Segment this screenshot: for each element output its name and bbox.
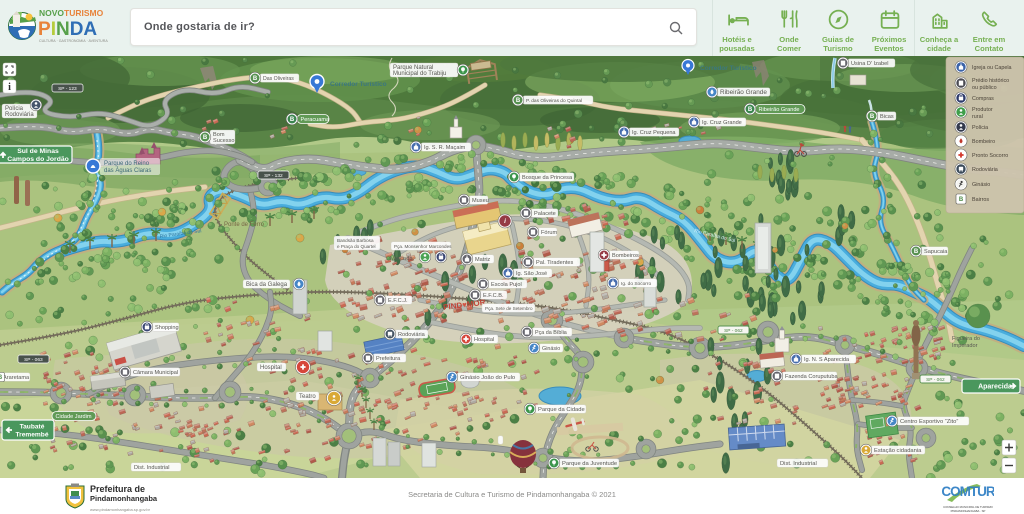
svg-text:B: B [959, 197, 964, 203]
svg-text:Prédio histórico: Prédio histórico [972, 78, 1009, 84]
svg-text:NOVO: NOVO [39, 8, 64, 18]
svg-text:TURISMO: TURISMO [64, 8, 104, 18]
svg-text:PINDA: PINDA [38, 19, 97, 40]
svg-text:Igreja ou Capela: Igreja ou Capela [972, 65, 1012, 71]
svg-text:Rodoviária: Rodoviária [972, 167, 998, 173]
svg-text:Bombeiro: Bombeiro [972, 139, 995, 145]
svg-text:ou público: ou público [972, 85, 997, 91]
svg-text:COMTUR: COMTUR [942, 484, 994, 499]
svg-text:CULTURA · GASTRONOMIA · AVENTU: CULTURA · GASTRONOMIA · AVENTURA [39, 39, 108, 43]
svg-text:i: i [8, 82, 11, 93]
svg-text:Polícia: Polícia [972, 125, 988, 131]
svg-text:Pronto Socorro: Pronto Socorro [972, 153, 1008, 159]
svg-text:Compras: Compras [972, 96, 994, 102]
svg-text:Ginásio: Ginásio [972, 182, 990, 188]
svg-text:rural: rural [972, 114, 983, 120]
svg-text:Produtor: Produtor [972, 107, 993, 113]
svg-text:Bairros: Bairros [972, 197, 989, 203]
